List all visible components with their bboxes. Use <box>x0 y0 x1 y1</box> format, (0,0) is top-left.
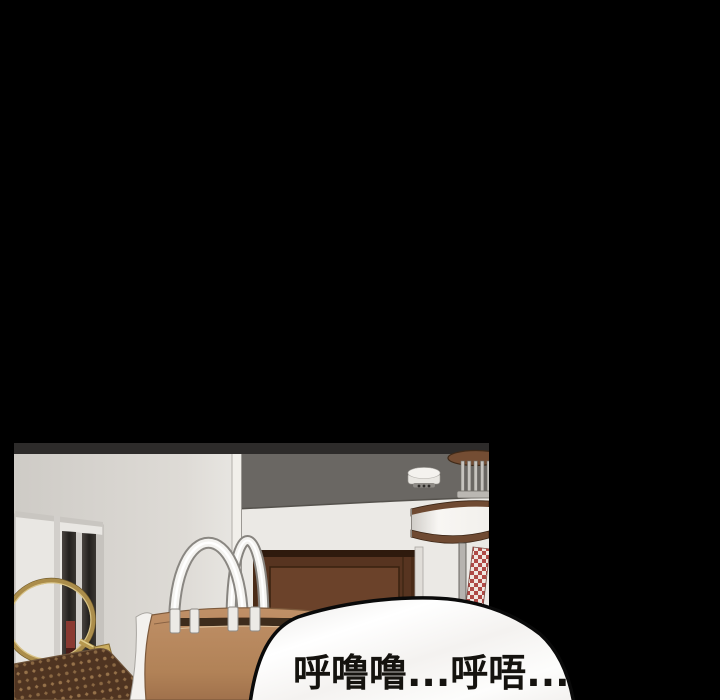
speech-bubble-text: 呼噜噜...呼唔... <box>293 653 543 695</box>
comic-page: 呼噜噜...呼唔... <box>0 0 720 700</box>
speech-bubble-layer <box>0 0 720 700</box>
